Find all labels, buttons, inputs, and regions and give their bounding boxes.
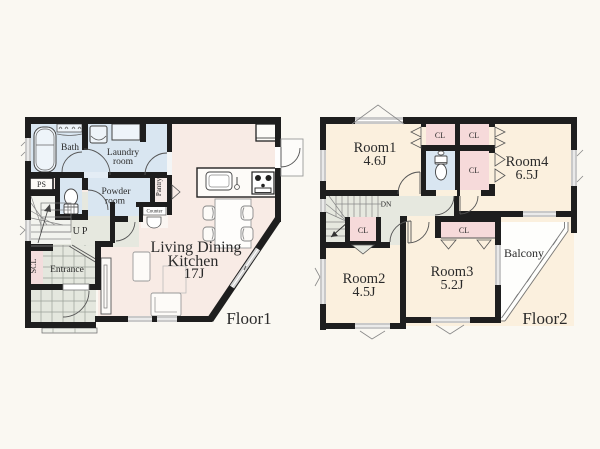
svg-text:Powder: Powder: [101, 187, 131, 197]
svg-text:CL: CL: [435, 131, 445, 140]
svg-text:CL: CL: [469, 131, 479, 140]
svg-text:Floor1: Floor1: [226, 309, 271, 328]
svg-text:4.6J: 4.6J: [364, 154, 388, 169]
svg-text:5.2J: 5.2J: [441, 278, 465, 293]
svg-text:6.5J: 6.5J: [516, 168, 540, 183]
svg-text:SCL: SCL: [29, 259, 38, 274]
svg-text:17J: 17J: [184, 266, 205, 282]
svg-text:PS: PS: [37, 180, 46, 189]
svg-text:Pantry: Pantry: [155, 177, 163, 196]
svg-text:CL: CL: [459, 226, 469, 235]
svg-text:Bath: Bath: [61, 143, 79, 153]
svg-text:Counter: Counter: [146, 209, 162, 214]
svg-text:Floor2: Floor2: [522, 309, 567, 328]
svg-text:Balcony: Balcony: [504, 246, 544, 260]
svg-text:DN: DN: [381, 200, 392, 209]
svg-text:Entrance: Entrance: [50, 265, 84, 275]
svg-text:UP: UP: [73, 226, 90, 237]
svg-text:CL: CL: [469, 166, 479, 175]
svg-text:4.5J: 4.5J: [353, 285, 377, 300]
svg-text:room: room: [105, 197, 126, 207]
svg-text:room: room: [113, 157, 134, 167]
svg-text:CL: CL: [358, 226, 368, 235]
